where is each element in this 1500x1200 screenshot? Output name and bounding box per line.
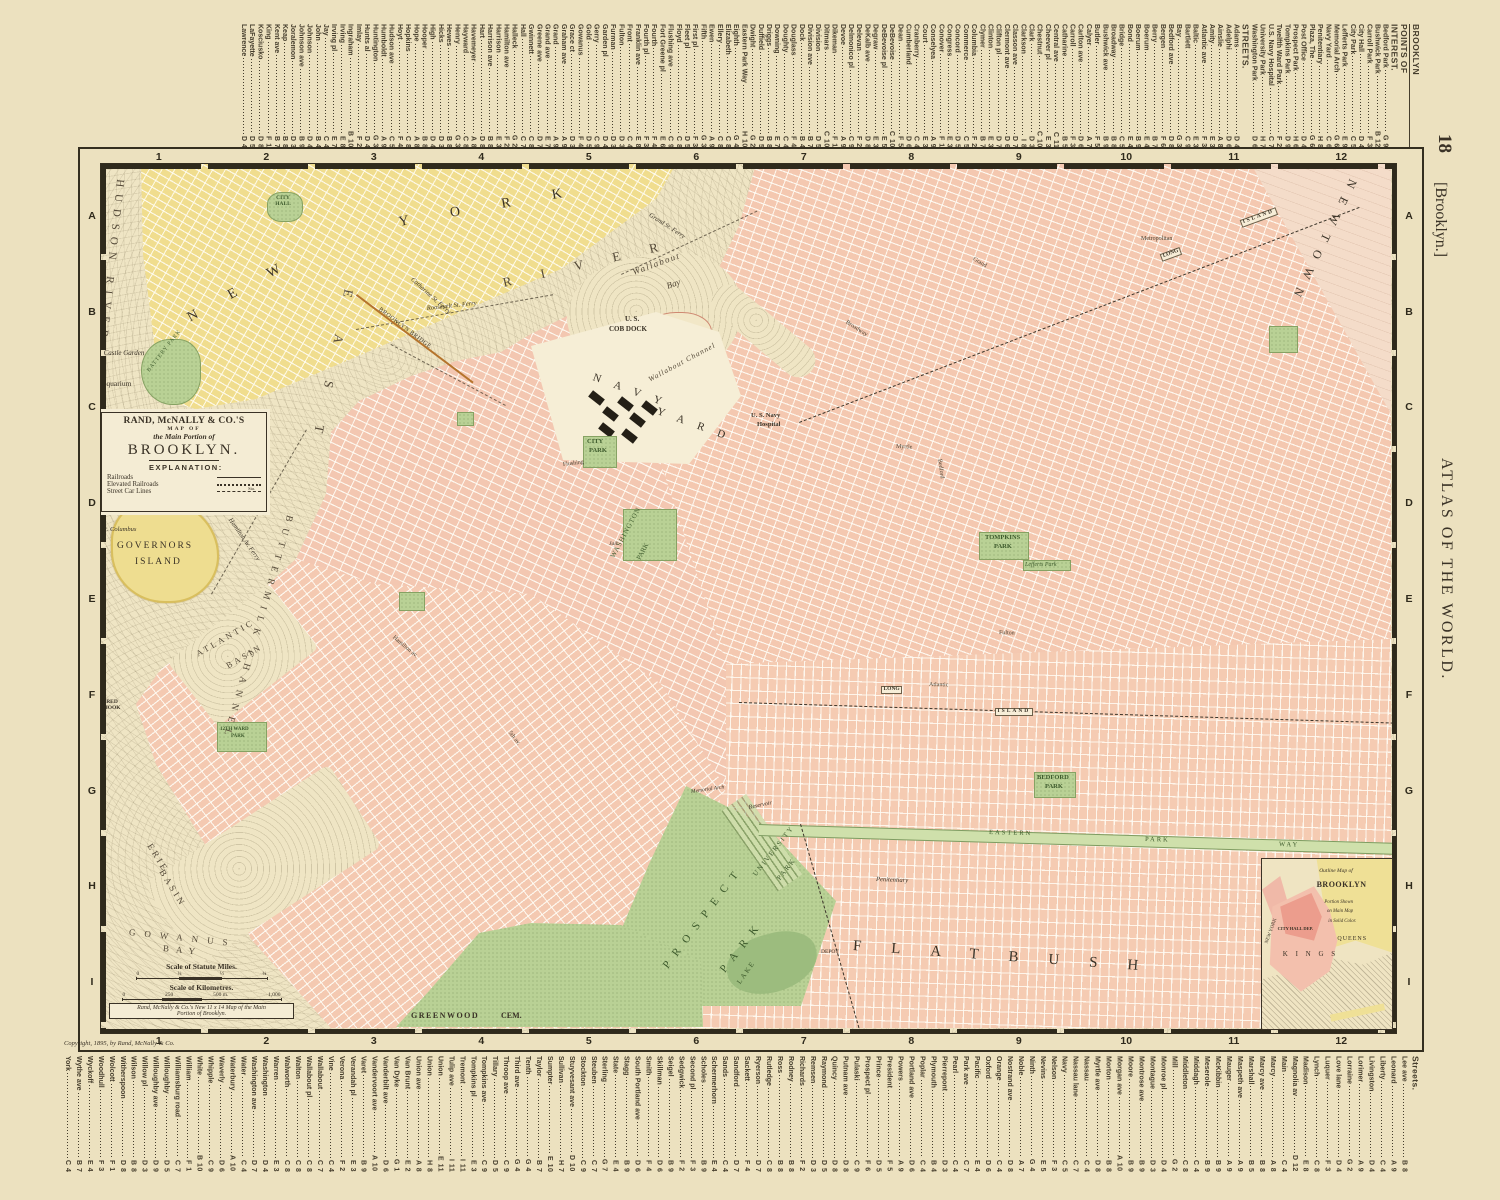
index-entry: SedgwickF 2 [677,1056,684,1172]
index-entry: Franklin aveE 8 [634,24,641,148]
index-entry: MarcyA 8 [1269,1056,1276,1172]
index-entry: Twelfth Ward ParkF 2 [1275,24,1282,148]
index-entry: DegrawE 3 [872,24,879,148]
index-entry: JohnsonD 4 [306,24,313,148]
index-entry: Streets. [1411,1056,1420,1172]
index-entry: Flushing aveC 9 [667,24,674,148]
label-jail: Jail [609,542,617,548]
index-entry: ClarkD 3 [1028,24,1035,148]
grid-letter: E [1402,551,1416,647]
label-fulton-street: Fulton [999,630,1015,637]
index-entry: RossB 8 [776,1056,783,1172]
index-entry: DuffieldD 5 [757,24,764,148]
index-entry: DitmarsC 10 [822,24,829,148]
index-entry: DockB 4 [798,24,805,148]
index-entry: HopkinsC 8 [404,24,411,148]
grid-rows-right: ABCDEFGHI [1402,168,1416,1030]
index-entry: Verandah plE 3 [349,1056,356,1172]
index-entry: Fleet plD 5 [683,24,690,148]
index-entry: Fort Greene plE 6 [658,24,665,148]
index-entry: ElleryC 8 [716,24,723,148]
index-entry: CommerceC 5 [962,24,969,148]
grid-letter: A [85,168,99,264]
grid-number: 3 [320,150,428,164]
index-entry: LaFayetteD 5 [248,24,255,148]
index-entry: Union aveA 8 [415,1056,422,1172]
grid-number: 2 [213,1034,321,1048]
index-entry: HarrisonE 3 [494,24,501,148]
index-entry: BayG 3 [1175,24,1182,148]
index-entry: Van BruntE 2 [404,1056,411,1172]
cartouche-title: BROOKLYN. [102,442,266,459]
label-myrtle-street: Myrtle [896,444,913,451]
index-entry: Stuyvesant aveD 10 [568,1056,575,1172]
index-entry: HuntingtonG 3 [371,24,378,148]
scale-miles-title: Scale of Statute Miles. [109,962,294,971]
inset-label-kings: K I N G S [1283,951,1338,958]
index-entry: DoughtyC 4 [781,24,788,148]
index-entry: Second plF 3 [688,1056,695,1172]
grid-letter: I [85,934,99,1030]
index-entry: Portland aveD 6 [907,1056,914,1172]
label-governors-island-2: ISLAND [135,558,182,568]
grid-number: 3 [320,1034,428,1048]
index-entry: WaterC 4 [239,1056,246,1172]
index-entry: South Portland aveD 6 [634,1056,641,1172]
index-entry: GowanusF 4 [576,24,583,148]
index-entry: Classon aveD 7 [1011,24,1018,148]
index-entry: CourtE 3 [921,24,928,148]
index-entry: SandsC 4 [721,1056,728,1172]
index-entry: Delmonico plC 9 [847,24,854,148]
index-entry: VineC 4 [327,1056,334,1172]
index-entry: MortonB 8 [1105,1056,1112,1172]
frame-band-bottom [101,1029,1396,1034]
index-entry: RemsenD 3 [809,1056,816,1172]
grid-number: 12 [1288,150,1396,164]
grid-number: 6 [643,1034,751,1048]
label-governors-island-1: GOVERNORS [117,542,193,552]
index-entry: DelevanF 2 [855,24,862,148]
index-entry: CumberlandD 6 [904,24,911,148]
index-entry: MeseroleB 9 [1203,1056,1210,1172]
scale-block: Scale of Statute Miles. 0¼½¾ Scale of Ki… [109,962,294,1019]
index-entry: Tompkins plE 3 [469,1056,476,1172]
index-entry: HartD 8 [478,24,485,148]
index-entry: Nostrand aveD 8 [1006,1056,1013,1172]
index-entry: SullivanH 7 [557,1056,564,1172]
index-entry: Irving plE 7 [330,24,337,148]
label-parkway-way: WAY [1279,842,1299,849]
index-entry: PacificE 4 [973,1056,980,1172]
index-entry: KosciuskoD 8 [256,24,263,148]
label-cob-dock-1: U. S. [625,316,639,323]
brooklyn-city-hall-park [457,412,474,426]
grid-columns-bottom: 123456789101112 [105,1034,1395,1048]
index-entry: VaretB 9 [360,1056,367,1172]
index-entry: Harrison aveB 8 [486,24,493,148]
index-entry: Nassau laneC 7 [1072,1056,1079,1172]
index-entry: LorimerA 9 [1356,1056,1363,1172]
index-entry: YorkC 4 [64,1056,71,1172]
index-entry: FrontC 4 [626,24,633,148]
index-entry: HoytF 4 [396,24,403,148]
index-entry: SeigelB 9 [666,1056,673,1172]
index-entry: LeonardA 9 [1389,1056,1396,1172]
index-entry: Myrtle aveD 8 [1094,1056,1101,1172]
index-entry: WilliamF 1 [184,1056,191,1172]
index-entry: HooperB 8 [420,24,427,148]
index-entry: CalyerA 7 [1085,24,1092,148]
grid-rows-left: ABCDEFGHI [85,168,99,1030]
index-entry: Washington aveD 7 [250,1056,257,1172]
index-entry: Tompkins aveC 9 [480,1056,487,1172]
label-bedford-park-2: PARK [1045,784,1063,791]
grid-letter: I [1402,934,1416,1030]
index-entry: WolcottF 1 [108,1056,115,1172]
index-entry: MontagueD 3 [1148,1056,1155,1172]
index-entry: Garden plD 4 [601,24,608,148]
index-entry: BartlettC 9 [1183,24,1190,148]
index-entry: Prospect ParkH 6 [1292,24,1299,148]
index-entry: Bedford ParkG 9 [1382,24,1389,148]
index-entry: BROOKLYN [1409,24,1420,148]
index-entry: Van DykeG 1 [393,1056,400,1172]
index-entry: PresidentF 5 [885,1056,892,1172]
index-entry: DikemanF 1 [831,24,838,148]
street-index-top: BROOKLYNPOINTS OFINTEREST.Bedford ParkG … [240,6,1422,148]
index-entry: LivingstonD 4 [1367,1056,1374,1172]
index-entry: PearlC 4 [951,1056,958,1172]
label-greenwood-cem: CEM. [501,1012,522,1020]
grid-number: 1 [105,150,213,164]
index-entry: DeKalb aveD 8 [863,24,870,148]
index-entry: NobleA 7 [1017,1056,1024,1172]
index-entry: Clifton plD 7 [995,24,1002,148]
grid-number: 1 [105,1034,213,1048]
index-entry: WaterburyA 10 [228,1056,235,1172]
grid-number: 6 [643,150,751,164]
index-entry: Tulip aveI 11 [447,1056,454,1172]
index-entry: GoldD 5 [585,24,592,148]
index-entry: LibertyC 4 [1378,1056,1385,1172]
index-entry: Clermont aveD 6 [1003,24,1010,148]
index-entry: HumboldtA 9 [379,24,386,148]
index-entry: Eastern Park WayH 10 [740,24,747,148]
label-cob-dock-2: COB DOCK [609,326,647,333]
index-entry: DwightG 2 [749,24,756,148]
grid-number: 5 [535,150,643,164]
index-entry: WhippleC 9 [206,1056,213,1172]
grid-number: 9 [965,1034,1073,1048]
index-entry: IrvingE 8 [338,24,345,148]
index-entry: ClarksonI 8 [1019,24,1026,148]
index-entry: SteubenC 7 [590,1056,597,1172]
index-entry: Kent aveB 7 [273,24,280,148]
grid-letter: D [85,455,99,551]
index-entry: SandfordD 7 [732,1056,739,1172]
index-entry: CongressE 3 [945,24,952,148]
index-entry: KeapB 8 [281,24,288,148]
index-entry: WarrenE 3 [272,1056,279,1172]
index-entry: McKibbinB 9 [1214,1056,1221,1172]
index-entry: LorraineG 2 [1346,1056,1353,1172]
index-entry: TenthG 4 [524,1056,531,1172]
index-entry: University ParkH 7 [1259,24,1266,148]
index-entry: DivisionD 5 [814,24,821,148]
index-entry: DevoeA 9 [839,24,846,148]
index-entry: NevinsE 5 [1039,1056,1046,1172]
index-entry: EwenA 9 [708,24,715,148]
index-entry: WhiteB 10 [195,1056,202,1172]
index-entry: WallaboutC 7 [316,1056,323,1172]
index-entry: FourthF 4 [650,24,657,148]
inset-note-2: on Main Map [1327,909,1353,914]
grid-letter: B [85,264,99,360]
index-entry: QuincyD 8 [831,1056,838,1172]
atlas-title: ATLAS OF THE WORLD. [1437,458,1455,681]
index-entry: ImlayF 2 [355,24,362,148]
index-entry: WitherspoonD 8 [119,1056,126,1172]
cartouche-subtitle: the Main Portion of [102,432,266,441]
index-entry: Fourth plF 3 [642,24,649,148]
index-entry: Love laneD 4 [1335,1056,1342,1172]
railroad-line-symbol [217,477,261,478]
page-bracket-title: [Brooklyn.] [1431,182,1449,257]
index-entry: BondE 4 [1126,24,1133,148]
label-atlantic-street: Atlantic [929,682,948,689]
index-entry: DeanF 5 [896,24,903,148]
index-entry: BalticE 3 [1192,24,1199,148]
index-entry: U.S. Navy HospitalC 7 [1267,24,1274,148]
grid-number: 12 [1288,1034,1396,1048]
index-entry: Navy YardC 6 [1324,24,1331,148]
index-entry: Johnson aveB 9 [297,24,304,148]
label-lefferts-park: Lefferts Park [1025,562,1057,568]
index-entry: NassauC 4 [1083,1056,1090,1172]
index-entry: WilsonB 8 [130,1056,137,1172]
label-parkway-park: PARK [1145,837,1170,844]
index-entry: Tompkins ParkD 9 [1283,24,1290,148]
index-entry: Williamsburg roadC 7 [174,1056,181,1172]
index-entry: Monroe plD 4 [1159,1056,1166,1172]
index-entry: RaymondD 5 [820,1056,827,1172]
label-penitentiary: Penitentiary [876,877,908,885]
label-tompkins-park-2: PARK [994,544,1012,551]
index-entry: MiddletonC 8 [1181,1056,1188,1172]
index-entry: CatharineB 5 [1060,24,1067,148]
index-entry: FultonD 3 [617,24,624,148]
index-entry: VeronaF 2 [338,1056,345,1172]
index-entry: INTEREST. [1390,24,1399,148]
index-entry: HavemeyerA 8 [470,24,477,148]
index-entry: MainC 4 [1280,1056,1287,1172]
index-entry: PowersA 9 [896,1056,903,1172]
grid-number: 5 [535,1034,643,1048]
index-entry: ConoverF 1 [937,24,944,148]
index-entry: LawrenceD 4 [240,24,247,148]
page-number: 18 [1433,134,1455,153]
frame-band-top [101,164,1396,169]
index-entry: PlymouthB 4 [929,1056,936,1172]
grid-letter: A [1402,168,1416,264]
index-entry: LynchC 8 [1313,1056,1320,1172]
index-entry: RyersonD 7 [754,1056,761,1172]
index-entry: Vanderbilt aveD 6 [382,1056,389,1172]
index-entry: DouglassF 4 [790,24,797,148]
atlas-page: { "page":{"no":"18","bracket":"[Brooklyn… [0,0,1500,1200]
label-twelfth-ward-park-1: 12TH WARD [220,727,249,732]
label-city-park-1: CITY [587,439,603,446]
index-entry: ButlerF 5 [1093,24,1100,148]
index-entry: OxfordD 6 [984,1056,991,1172]
index-entry: BergenF 6 [1159,24,1166,148]
index-entry: Montrose aveB 9 [1137,1056,1144,1172]
label-ft-columbus: Ft. Columbus [101,527,136,534]
index-entry: HighD 4 [429,24,436,148]
grid-number: 11 [1180,1034,1288,1048]
index-entry: STREETS. [1241,24,1250,148]
grid-number: 9 [965,150,1073,164]
inset-note-3: in Solid Color. [1328,919,1356,924]
index-entry: BerryB 7 [1151,24,1158,148]
label-aquarium: Aquarium [101,380,131,388]
index-entry: Lee aveB 8 [1400,1056,1407,1172]
index-entry: UnionE 11 [436,1056,443,1172]
map-canvas: HUDSON RIVER EAST RIVER NEW YORK CITY HA… [100,163,1397,1034]
label-greenwood: GREENWOOD [411,1012,479,1020]
legend-railroads: Railroads [102,474,266,481]
grid-number: 7 [750,1034,858,1048]
index-entry: NavyC 5 [1061,1056,1068,1172]
grid-letter: H [1402,838,1416,934]
grid-letter: D [1402,455,1416,551]
grid-letter: G [85,743,99,839]
index-entry: Washington ParkD 6 [1250,24,1257,148]
index-entry: Morgan aveA 10 [1116,1056,1123,1172]
index-entry: GrandA 9 [552,24,559,148]
label-long-island-rr-island: ISLAND [995,708,1033,716]
index-entry: NelsonF 3 [1050,1056,1057,1172]
grid-number: 2 [213,150,321,164]
index-entry: HopeA 8 [412,24,419,148]
index-entry: JoralemonD 3 [289,24,296,148]
grid-letter: H [85,838,99,934]
scale-miles-bar [136,977,268,980]
label-twelfth-ward-park-2: PARK [231,734,245,739]
scale-km-bar [122,998,282,1001]
index-entry: MooreB 9 [1126,1056,1133,1172]
index-entry: ColumbiaF 2 [970,24,977,148]
label-navy-hospital-2: Hospital [757,422,780,429]
map-content: HUDSON RIVER EAST RIVER NEW YORK CITY HA… [101,164,1396,1033]
index-entry: AdelphiD 6 [1224,24,1231,148]
index-entry: WalworthC 8 [283,1056,290,1172]
index-entry: BroadwayB 8 [1110,24,1117,148]
index-entry: Willoughby aveD 9 [152,1056,159,1172]
index-entry: PoplarC 4 [918,1056,925,1172]
index-entry: OrangeC 4 [995,1056,1002,1172]
label-tompkins-park-1: TOMPKINS [985,535,1020,542]
index-entry: AinslieA 8 [1216,24,1223,148]
index-entry: Greene aveD 7 [535,24,542,148]
bushwick-park [1269,326,1298,353]
index-entry: AdamsD 4 [1233,24,1240,148]
index-entry: Throop aveC 9 [502,1056,509,1172]
index-entry: FifthG 3 [699,24,706,148]
inset-label-queens: QUEENS [1337,936,1367,942]
grid-letter: C [85,360,99,456]
index-entry: Vandervoort aveA 10 [371,1056,378,1172]
scale-km-title: Scale of Kilometres. [109,983,294,992]
index-entry: ClintonE 3 [986,24,993,148]
index-entry: ChestnutC 10 [1036,24,1043,148]
index-entry: PenitentiaryH 8 [1316,24,1323,148]
index-entry: ScholesB 9 [699,1056,706,1172]
index-entry: WilloughbyD 5 [163,1056,170,1172]
index-entry: MarshallB 5 [1247,1056,1254,1172]
streetcar-line-symbol: Sta. [217,491,261,492]
index-entry: RichardsF 2 [798,1056,805,1172]
grid-number: 4 [428,150,536,164]
index-entry: EighthG 4 [732,24,739,148]
index-entry: Bushwick ParkB 12 [1374,24,1381,148]
label-navy-hospital-1: U. S. Navy [751,413,780,420]
index-entry: ConselyeaA 9 [929,24,936,148]
index-entry: Carlton aveD 6 [1077,24,1084,148]
index-entry: SackettF 4 [743,1056,750,1172]
index-entry: JohnB 4 [314,24,321,148]
grid-letter: F [1402,647,1416,743]
index-entry: CarrollF 3 [1069,24,1076,148]
grid-number: 4 [428,1034,536,1048]
index-entry: MaugerA 9 [1225,1056,1232,1172]
index-entry: MillG 2 [1170,1056,1177,1172]
grid-number: 10 [1073,1034,1181,1048]
index-entry: RutledgeC 8 [765,1056,772,1172]
index-entry: HicksD 3 [437,24,444,148]
index-entry: TremontI 11 [458,1056,465,1172]
index-entry: FloydC 8 [675,24,682,148]
index-entry: Prospect plF 6 [864,1056,871,1172]
index-entry: StateE 4 [612,1056,619,1172]
inset-outline-map: Outline Map of BROOKLYN Portion Shown on… [1261,858,1393,1030]
index-entry: First plF 3 [691,24,698,148]
index-entry: HewesB 8 [445,24,452,148]
grid-number: 11 [1180,150,1288,164]
index-entry: JayC 4 [322,24,329,148]
grid-columns-top: 123456789101112 [105,150,1395,164]
grid-number: 10 [1073,150,1181,164]
index-entry: UnionH 8 [425,1056,432,1172]
index-entry: Carroll ParkF 3 [1365,24,1372,148]
index-entry: GerryC 9 [593,24,600,148]
legend-elevated: Elevated Railroads [102,481,266,488]
label-bedford-park-1: BEDFORD [1037,775,1069,782]
index-entry: DeBevoiseC 10 [888,24,895,148]
index-entry: Lefferts ParkE 9 [1341,24,1348,148]
carroll-park [399,592,425,611]
index-entry: HaywardC 8 [461,24,468,148]
street-index-bottom: Streets.Lee aveB 8LeonardA 9LibertyC 4Li… [64,1056,1420,1196]
index-entry: Plaza, TheG 6 [1308,24,1315,148]
index-entry: Hamilton aveF 2 [503,24,510,148]
index-entry: MiddaghC 4 [1192,1056,1199,1172]
frame-band-left [101,164,106,1033]
index-entry: NinthG 4 [1028,1056,1035,1172]
label-long-island-rr-long: LONG [881,686,902,694]
index-entry: CranberryC 4 [913,24,920,148]
